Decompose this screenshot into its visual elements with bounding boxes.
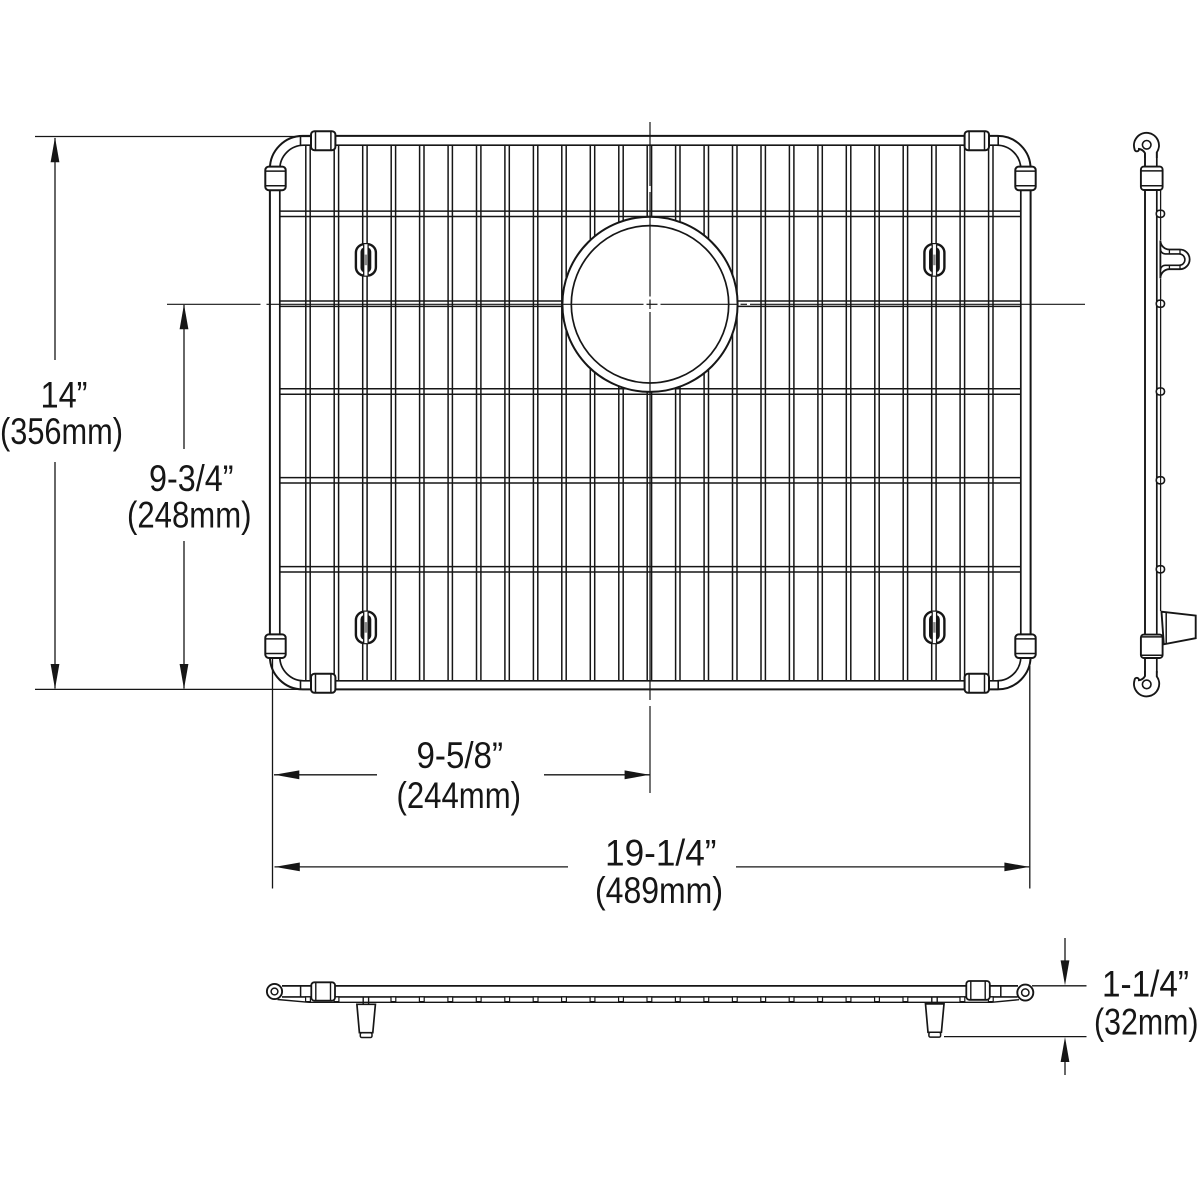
- svg-text:19-1/4”: 19-1/4”: [605, 833, 717, 874]
- svg-text:(356mm): (356mm): [0, 411, 123, 452]
- svg-text:(244mm): (244mm): [397, 775, 522, 816]
- svg-text:(489mm): (489mm): [595, 870, 723, 911]
- svg-text:9-5/8”: 9-5/8”: [417, 735, 504, 776]
- svg-text:(248mm): (248mm): [127, 495, 252, 536]
- svg-text:14”: 14”: [41, 375, 88, 416]
- svg-text:1-1/4”: 1-1/4”: [1102, 964, 1189, 1005]
- svg-text:9-3/4”: 9-3/4”: [149, 458, 234, 499]
- svg-text:(32mm): (32mm): [1094, 1002, 1199, 1043]
